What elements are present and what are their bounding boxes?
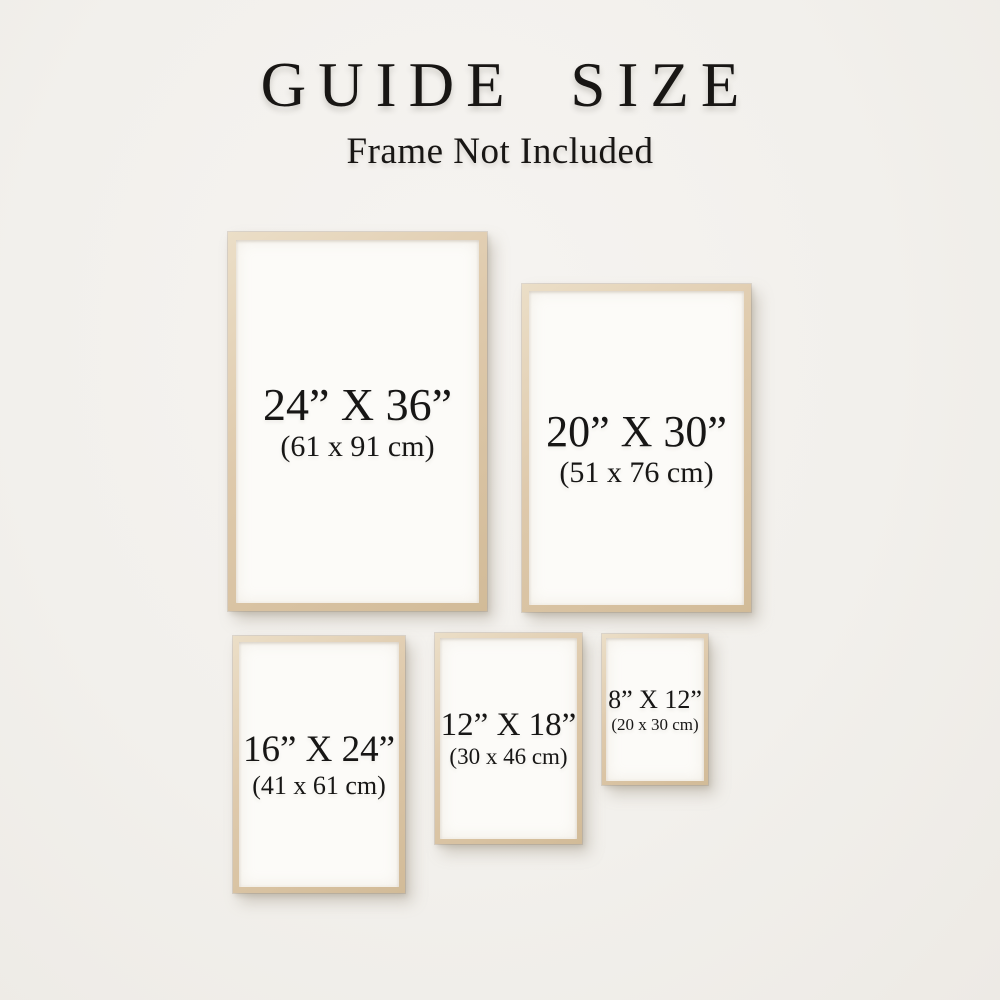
frame-20x30-size-inches: 20” X 30”	[546, 407, 727, 456]
frame-8x12: 8” X 12” (20 x 30 cm)	[602, 634, 708, 785]
frame-16x24-poster: 16” X 24” (41 x 61 cm)	[239, 642, 399, 887]
frame-12x18: 12” X 18” (30 x 46 cm)	[435, 633, 582, 844]
frame-20x30: 20” X 30” (51 x 76 cm)	[522, 284, 751, 612]
frame-16x24-size-cm: (41 x 61 cm)	[243, 771, 395, 800]
page-title: GUIDE SIZE	[0, 54, 1000, 117]
frame-20x30-label: 20” X 30” (51 x 76 cm)	[546, 407, 727, 490]
frame-8x12-size-inches: 8” X 12”	[608, 685, 702, 714]
frame-12x18-size-cm: (30 x 46 cm)	[441, 744, 577, 770]
frame-20x30-size-cm: (51 x 76 cm)	[546, 456, 727, 490]
frame-20x30-poster: 20” X 30” (51 x 76 cm)	[529, 291, 744, 605]
frame-8x12-size-cm: (20 x 30 cm)	[608, 715, 702, 734]
frame-16x24: 16” X 24” (41 x 61 cm)	[233, 636, 405, 893]
frame-24x36-label: 24” X 36” (61 x 91 cm)	[263, 379, 452, 464]
frame-16x24-label: 16” X 24” (41 x 61 cm)	[243, 729, 395, 800]
frame-8x12-label: 8” X 12” (20 x 30 cm)	[608, 685, 702, 733]
frame-12x18-size-inches: 12” X 18”	[441, 707, 577, 744]
header: GUIDE SIZE Frame Not Included	[0, 54, 1000, 170]
frame-8x12-poster: 8” X 12” (20 x 30 cm)	[606, 638, 704, 781]
frame-24x36-size-cm: (61 x 91 cm)	[263, 430, 452, 464]
frame-24x36: 24” X 36” (61 x 91 cm)	[228, 232, 487, 611]
frame-12x18-poster: 12” X 18” (30 x 46 cm)	[440, 638, 577, 839]
page-subtitle: Frame Not Included	[0, 133, 1000, 170]
frame-16x24-size-inches: 16” X 24”	[243, 729, 395, 770]
size-guide-image: GUIDE SIZE Frame Not Included 24” X 36” …	[0, 0, 1000, 1000]
frame-12x18-label: 12” X 18” (30 x 46 cm)	[441, 707, 577, 770]
frame-24x36-size-inches: 24” X 36”	[263, 379, 452, 431]
frame-24x36-poster: 24” X 36” (61 x 91 cm)	[236, 240, 479, 603]
